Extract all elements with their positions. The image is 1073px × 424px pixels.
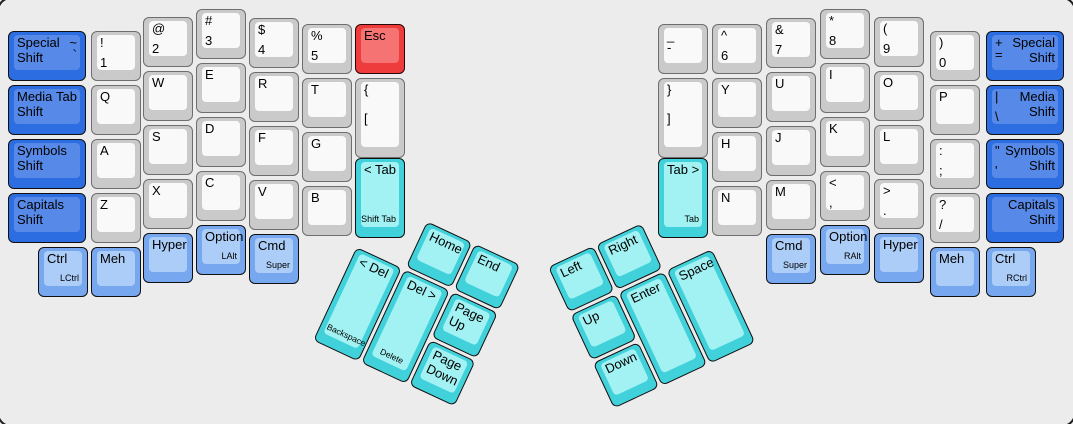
key-w-legend-tl: W: [152, 75, 187, 90]
key-z[interactable]: Z: [91, 193, 141, 243]
key-symbols-shift-left-legend-mainl: Symbols Shift: [17, 143, 78, 173]
key-z-legend-tl: Z: [100, 197, 135, 212]
key-d[interactable]: D: [196, 117, 246, 167]
key-p-legend-tl: P: [939, 89, 974, 104]
key-u-legend-tl: U: [775, 76, 810, 91]
key-backspace-legend-bc: Backspace: [324, 320, 363, 349]
key-g-legend-tl: G: [311, 136, 346, 151]
key-hash-3[interactable]: #3: [196, 9, 246, 59]
key-cmd-left-legend-br: Super: [266, 258, 290, 273]
keycap-face: N: [718, 190, 756, 225]
keycap-face: I: [826, 67, 864, 102]
key-r-legend-tl: R: [258, 76, 293, 91]
key-gt-period[interactable]: >.: [874, 179, 924, 229]
key-caret-6[interactable]: ^6: [712, 24, 762, 74]
key-at-2-legend-tl: @: [152, 21, 187, 36]
key-j[interactable]: J: [766, 126, 816, 176]
key-media-shift-left-legend-tr: Tab: [56, 89, 77, 104]
key-ctrl-left-legend-tl: Ctrl: [47, 251, 82, 266]
keycap-face: Hyper: [880, 237, 918, 272]
keycap-face: {[: [361, 82, 399, 147]
key-exclam-1-legend-bl: 1: [100, 55, 107, 70]
key-at-2[interactable]: @2: [143, 17, 193, 67]
key-v-legend-tl: V: [258, 184, 293, 199]
key-asterisk-8-legend-bl: 8: [829, 33, 836, 48]
keycap-face: #3: [202, 13, 240, 48]
key-h-legend-tl: H: [721, 136, 756, 151]
key-u[interactable]: U: [766, 72, 816, 122]
key-asterisk-8[interactable]: *8: [820, 9, 870, 59]
keycap-face: R: [255, 76, 293, 111]
key-k[interactable]: K: [820, 117, 870, 167]
key-colon-semicolon-legend-tl: :: [939, 143, 974, 158]
key-capitals-shift-left[interactable]: Capitals Shift: [8, 193, 86, 243]
key-esc-legend-tl: Esc: [364, 28, 399, 43]
keycap-face: Down: [600, 348, 649, 396]
keycap-face: OptionLAlt: [202, 229, 240, 264]
keycap-face: P: [936, 89, 974, 124]
keycap-face: !1: [97, 35, 135, 70]
key-i[interactable]: I: [820, 63, 870, 113]
keycap-face: Z: [97, 197, 135, 232]
key-special-shift-left[interactable]: Special Shift~`: [8, 31, 86, 81]
key-ctrl-right-legend-tl: Ctrl: [995, 251, 1030, 266]
key-dollar-4-legend-bl: 4: [258, 42, 265, 57]
key-space-legend-tl: Space: [676, 255, 714, 283]
key-hyper-right[interactable]: Hyper: [874, 233, 924, 283]
key-m[interactable]: M: [766, 180, 816, 230]
keycap-face: Special Shift+=: [992, 35, 1058, 70]
keycap-face: }]: [664, 82, 702, 147]
key-gt-period-legend-bl: .: [883, 203, 887, 218]
key-brace-bracket-left-legend-ml: [: [364, 111, 368, 126]
keycap-face: <,: [826, 175, 864, 210]
keycap-face: W: [149, 75, 187, 110]
keycap-face: F: [255, 130, 293, 165]
key-cmd-left-legend-tl: Cmd: [258, 238, 293, 253]
key-media-shift-right-legend-tl: |: [995, 89, 1058, 104]
key-meh-left-legend-tl: Meh: [100, 251, 135, 266]
key-brace-bracket-left[interactable]: {[: [355, 78, 405, 158]
keycap-face: Media ShiftTab: [14, 89, 80, 124]
key-tab-left-legend-tl: < Tab: [364, 162, 399, 177]
key-brace-bracket-left-legend-tl: {: [364, 82, 399, 97]
keycap-face: M: [772, 184, 810, 219]
keycap-face: :;: [936, 143, 974, 178]
keycap-face: $4: [255, 22, 293, 57]
key-o[interactable]: O: [874, 71, 924, 121]
key-page-up-legend-tl: Page Up: [446, 299, 490, 341]
key-y-legend-tl: Y: [721, 82, 756, 97]
keycap-face: Meh: [97, 251, 135, 286]
key-h[interactable]: H: [712, 132, 762, 182]
keycap-face: &7: [772, 22, 810, 57]
key-q[interactable]: Q: [91, 85, 141, 135]
key-hash-3-legend-tl: #: [205, 13, 240, 28]
keycap-face: Left: [555, 252, 604, 300]
key-delete-legend-bc: Delete: [372, 342, 411, 371]
key-l-legend-tl: L: [883, 129, 918, 144]
keycap-face: CmdSuper: [255, 238, 293, 273]
key-b-legend-tl: B: [311, 190, 346, 205]
keycap-face: E: [202, 67, 240, 102]
key-asterisk-8-legend-tl: *: [829, 13, 864, 28]
key-lt-comma-legend-bl: ,: [829, 195, 833, 210]
keycap-face: C: [202, 175, 240, 210]
key-lt-comma-legend-tl: <: [829, 175, 864, 190]
key-meh-right[interactable]: Meh: [930, 247, 980, 297]
keycap-face: J: [772, 130, 810, 165]
key-paren-9-legend-bl: 9: [883, 41, 890, 56]
keycap-face: ?/: [936, 197, 974, 232]
keycap-face: @2: [149, 21, 187, 56]
key-meh-left[interactable]: Meh: [91, 247, 141, 297]
key-brace-bracket-right-legend-ml: ]: [667, 111, 671, 126]
key-at-2-legend-bl: 2: [152, 41, 159, 56]
key-q-legend-tl: Q: [100, 89, 135, 104]
key-paren-0-legend-bl: 0: [939, 55, 946, 70]
keycap-face: Special Shift~`: [14, 35, 80, 70]
key-e-legend-tl: E: [205, 67, 240, 82]
key-paren-0-legend-tl: ): [939, 35, 974, 50]
key-home-legend-tl: Home: [427, 229, 465, 257]
key-underscore-dash-legend-tl2: -: [667, 40, 671, 55]
key-brace-bracket-right[interactable]: }]: [658, 78, 708, 158]
key-option-left-legend-tl: Option: [205, 229, 240, 244]
keycap-face: >.: [880, 183, 918, 218]
key-c-legend-tl: C: [205, 175, 240, 190]
keycap-face: ^6: [718, 28, 756, 63]
key-capitals-shift-left-legend-mainl: Capitals Shift: [17, 197, 78, 227]
key-f-legend-tl: F: [258, 130, 293, 145]
key-ctrl-right[interactable]: CtrlRCtrl: [986, 247, 1036, 297]
key-paren-0[interactable]: )0: [930, 31, 980, 81]
key-exclam-1[interactable]: !1: [91, 31, 141, 81]
key-option-left-legend-br: LAlt: [221, 249, 237, 264]
keycap-face: L: [880, 129, 918, 164]
keycap-face: Home: [416, 228, 465, 276]
key-cmd-right-legend-br: Super: [783, 258, 807, 273]
key-backspace-legend-tl: < Del: [357, 254, 395, 282]
key-hyper-right-legend-tl: Hyper: [883, 237, 918, 252]
key-hash-3-legend-bl: 3: [205, 33, 212, 48]
key-v[interactable]: V: [249, 180, 299, 230]
keycap-face: Esc: [361, 28, 399, 63]
keycap-face: T: [308, 82, 346, 117]
key-amp-7-legend-bl: 7: [775, 42, 782, 57]
key-caret-6-legend-bl: 6: [721, 48, 728, 63]
keycap-face: CmdSuper: [772, 238, 810, 273]
key-lt-comma[interactable]: <,: [820, 171, 870, 221]
key-tab-right-legend-tl: Tab >: [667, 162, 702, 177]
key-dollar-4-legend-tl: $: [258, 22, 293, 37]
key-symbols-shift-right-legend-bl: ': [995, 163, 997, 178]
key-c[interactable]: C: [196, 171, 246, 221]
key-p[interactable]: P: [930, 85, 980, 135]
key-r[interactable]: R: [249, 72, 299, 122]
key-e[interactable]: E: [196, 63, 246, 113]
key-cmd-right-legend-tl: Cmd: [775, 238, 810, 253]
keycap-face: X: [149, 183, 187, 218]
key-exclam-1-legend-tl: !: [100, 35, 135, 50]
key-x-legend-tl: X: [152, 183, 187, 198]
keyboard-layout-canvas: Special Shift~`Media ShiftTabSymbols Shi…: [0, 0, 1073, 424]
keycap-face: B: [308, 190, 346, 225]
key-f[interactable]: F: [249, 126, 299, 176]
key-ctrl-left[interactable]: CtrlLCtrl: [38, 247, 88, 297]
keycap-face: Symbols Shift"': [992, 143, 1058, 178]
keycap-face: Meh: [936, 251, 974, 286]
key-d-legend-tl: D: [205, 121, 240, 136]
key-page-down-legend-tl: Page Down: [424, 347, 468, 389]
key-underscore-dash[interactable]: _-: [658, 24, 708, 74]
key-question-slash[interactable]: ?/: [930, 193, 980, 243]
keycap-face: Y: [718, 82, 756, 117]
key-percent-5[interactable]: %5: [302, 24, 352, 74]
key-hyper-left[interactable]: Hyper: [143, 233, 193, 283]
keycap-face: OptionRAlt: [826, 229, 864, 264]
keycap-face: Media Shift|\: [992, 89, 1058, 124]
keycap-face: (9: [880, 21, 918, 56]
key-colon-semicolon-legend-bl: ;: [939, 163, 943, 178]
keycap-face: %5: [308, 28, 346, 63]
keycap-face: Page Up: [442, 298, 491, 346]
key-i-legend-tl: I: [829, 67, 864, 82]
key-t-legend-tl: T: [311, 82, 346, 97]
key-arrow-left-legend-tl: Left: [558, 252, 596, 280]
key-special-shift-right[interactable]: Special Shift+=: [986, 31, 1064, 81]
key-percent-5-legend-bl: 5: [311, 48, 318, 63]
key-media-shift-left[interactable]: Media ShiftTab: [8, 85, 86, 135]
keycap-face: H: [718, 136, 756, 171]
keycap-face: Capitals Shift: [992, 197, 1058, 232]
key-gt-period-legend-tl: >: [883, 183, 918, 198]
key-question-slash-legend-tl: ?: [939, 197, 974, 212]
keycap-face: D: [202, 121, 240, 156]
key-symbols-shift-right[interactable]: Symbols Shift"': [986, 139, 1064, 189]
keycap-face: U: [772, 76, 810, 111]
key-end-legend-tl: End: [475, 251, 513, 279]
key-g[interactable]: G: [302, 132, 352, 182]
key-option-left[interactable]: OptionLAlt: [196, 225, 246, 275]
key-capitals-shift-right[interactable]: Capitals Shift: [986, 193, 1064, 243]
key-paren-9-legend-tl: (: [883, 21, 918, 36]
key-brace-bracket-right-legend-tl: }: [667, 82, 702, 97]
key-amp-7[interactable]: &7: [766, 18, 816, 68]
key-m-legend-tl: M: [775, 184, 810, 199]
keycap-face: G: [308, 136, 346, 171]
key-cmd-left[interactable]: CmdSuper: [249, 234, 299, 284]
key-capitals-shift-right-legend-mainr: Capitals Shift: [994, 197, 1055, 227]
keycap-face: )0: [936, 35, 974, 70]
key-s[interactable]: S: [143, 125, 193, 175]
key-paren-9[interactable]: (9: [874, 17, 924, 67]
key-percent-5-legend-tl: %: [311, 28, 346, 43]
key-w[interactable]: W: [143, 71, 193, 121]
key-esc[interactable]: Esc: [355, 24, 405, 74]
key-caret-6-legend-tl: ^: [721, 28, 756, 43]
key-special-shift-right-legend-tl: +: [995, 35, 1058, 50]
keycap-face: O: [880, 75, 918, 110]
keycap-face: CtrlLCtrl: [44, 251, 82, 286]
key-media-shift-right-legend-bl: \: [995, 109, 999, 124]
key-cmd-right[interactable]: CmdSuper: [766, 234, 816, 284]
key-b[interactable]: B: [302, 186, 352, 236]
key-l[interactable]: L: [874, 125, 924, 175]
key-option-right-legend-tl: Option: [829, 229, 864, 244]
key-underscore-dash-legend-tl: _: [667, 28, 702, 43]
key-n[interactable]: N: [712, 186, 762, 236]
keycap-face: A: [97, 143, 135, 178]
keycap-face: Up: [578, 300, 627, 348]
key-s-legend-tl: S: [152, 129, 187, 144]
keycap-face: CtrlRCtrl: [992, 251, 1030, 286]
key-symbols-shift-right-legend-tl: ": [995, 143, 1058, 158]
keycap-face: Capitals Shift: [14, 197, 80, 232]
key-k-legend-tl: K: [829, 121, 864, 136]
key-colon-semicolon[interactable]: :;: [930, 139, 980, 189]
key-option-right[interactable]: OptionRAlt: [820, 225, 870, 275]
keycap-face: K: [826, 121, 864, 156]
keycap-face: Hyper: [149, 237, 187, 272]
key-special-shift-left-legend-tr2: `: [73, 47, 77, 62]
key-a[interactable]: A: [91, 139, 141, 189]
key-x[interactable]: X: [143, 179, 193, 229]
key-ctrl-right-legend-br: RCtrl: [1007, 271, 1028, 286]
key-o-legend-tl: O: [883, 75, 918, 90]
key-y[interactable]: Y: [712, 78, 762, 128]
key-arrow-right-legend-tl: Right: [606, 230, 644, 258]
key-option-right-legend-br: RAlt: [844, 249, 861, 264]
key-meh-right-legend-tl: Meh: [939, 251, 974, 266]
keycap-face: *8: [826, 13, 864, 48]
key-t[interactable]: T: [302, 78, 352, 128]
key-media-shift-right[interactable]: Media Shift|\: [986, 85, 1064, 135]
key-symbols-shift-left[interactable]: Symbols Shift: [8, 139, 86, 189]
keycap-face: Q: [97, 89, 135, 124]
keycap-face: _-: [664, 28, 702, 63]
keycap-face: Right: [603, 230, 652, 278]
keycap-face: Symbols Shift: [14, 143, 80, 178]
keycap-face: S: [149, 129, 187, 164]
key-hyper-left-legend-tl: Hyper: [152, 237, 187, 252]
key-n-legend-tl: N: [721, 190, 756, 205]
key-dollar-4[interactable]: $4: [249, 18, 299, 68]
keycap-face: End: [464, 250, 513, 298]
key-question-slash-legend-bl: /: [939, 217, 943, 232]
keycap-face: V: [255, 184, 293, 219]
keycap-face: Page Down: [419, 346, 468, 394]
key-ctrl-left-legend-br: LCtrl: [60, 271, 79, 286]
key-a-legend-tl: A: [100, 143, 135, 158]
key-special-shift-right-legend-tl2: =: [995, 47, 1003, 62]
key-j-legend-tl: J: [775, 130, 810, 145]
key-amp-7-legend-tl: &: [775, 22, 810, 37]
